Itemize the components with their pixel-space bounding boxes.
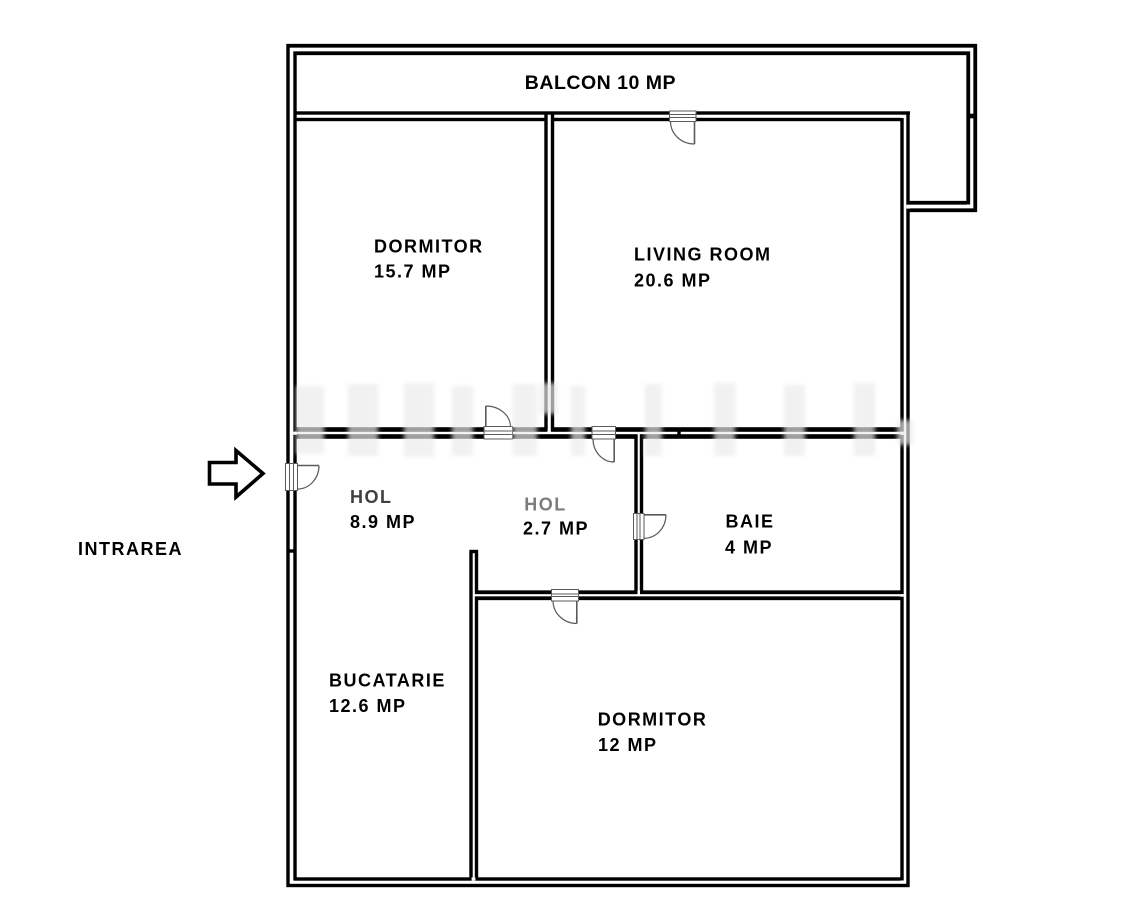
svg-text:8.9 MP: 8.9 MP	[350, 512, 416, 532]
svg-text:4 MP: 4 MP	[725, 538, 773, 558]
svg-text:BUCATARIE: BUCATARIE	[329, 671, 446, 691]
svg-text:12 MP: 12 MP	[598, 735, 658, 755]
svg-text:HOL: HOL	[350, 487, 393, 507]
svg-text:20.6 MP: 20.6 MP	[634, 271, 712, 291]
svg-text:HOL: HOL	[524, 495, 567, 515]
svg-text:LIVING ROOM: LIVING ROOM	[634, 245, 772, 265]
svg-text:INTRAREA: INTRAREA	[78, 539, 183, 559]
svg-text:DORMITOR: DORMITOR	[374, 237, 484, 257]
svg-text:12.6 MP: 12.6 MP	[329, 696, 407, 716]
svg-text:DORMITOR: DORMITOR	[598, 710, 708, 730]
svg-text:2.7 MP: 2.7 MP	[523, 519, 589, 539]
svg-text:BAIE: BAIE	[726, 512, 775, 532]
svg-text:15.7 MP: 15.7 MP	[374, 262, 452, 282]
svg-text:BALCON 10 MP: BALCON 10 MP	[525, 72, 676, 94]
